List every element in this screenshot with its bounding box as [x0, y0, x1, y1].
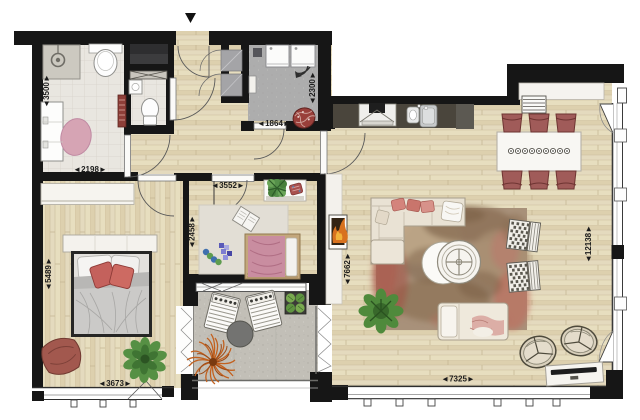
svg-text:◄2300►: ◄2300► [308, 71, 317, 105]
svg-text:◄3500►: ◄3500► [42, 74, 51, 108]
svg-text:◄2458►: ◄2458► [188, 215, 197, 249]
svg-text:◄5489►: ◄5489► [44, 257, 53, 291]
svg-text:◄12138►: ◄12138► [584, 225, 593, 263]
svg-text:◄2198►: ◄2198► [73, 165, 107, 174]
svg-text:◄7325►: ◄7325► [441, 375, 475, 384]
svg-text:◄1864►: ◄1864► [257, 119, 291, 128]
svg-text:◄3552►: ◄3552► [211, 181, 245, 190]
svg-text:◄3673►: ◄3673► [98, 379, 132, 388]
svg-text:◄7662►: ◄7662► [343, 252, 352, 286]
